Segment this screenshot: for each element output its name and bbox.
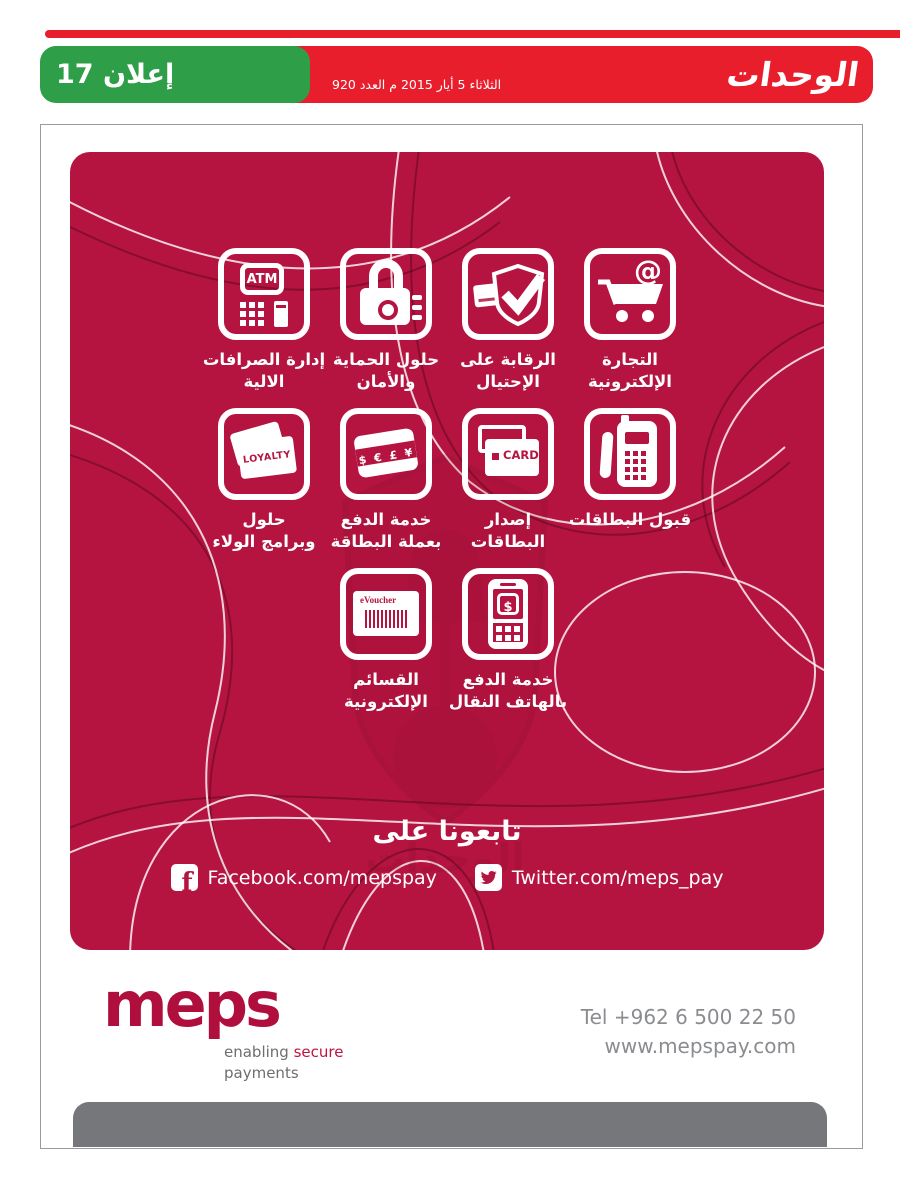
service-tile-security: حلول الحماية والأمان: [325, 248, 447, 393]
service-label-evoucher: القسائم الإلكترونية: [344, 669, 428, 713]
service-tile-loyalty: LOYALTY حلول وبرامج الولاء: [203, 408, 325, 553]
service-tile-currency: $ € £ ¥ خدمة الدفع بعملة البطاقة: [325, 408, 447, 553]
currency-card-icon: $ € £ ¥: [340, 408, 432, 500]
newspaper-title: الوحدات: [725, 55, 862, 94]
follow-us-heading: تابعونا على: [70, 816, 824, 847]
services-row-1: ATM إدارة الصرافات الالية: [70, 248, 824, 393]
currency-icon-text: $ € £ ¥: [358, 446, 415, 468]
newspaper-ad-page: الوحدات الثلاثاء 5 أيار 2015 م العدد 920…: [0, 0, 900, 1200]
bottom-gray-bar: [73, 1102, 827, 1147]
loyalty-cards-icon: LOYALTY: [218, 408, 310, 500]
service-tile-mobile-pay: $ خدمة الدفع بالهاتف النقال: [447, 568, 569, 713]
at-symbol: @: [634, 254, 662, 287]
barcode: [365, 610, 407, 628]
masthead-bar: الوحدات الثلاثاء 5 أيار 2015 م العدد 920: [280, 46, 873, 103]
ad-number-label: إعلان 17: [56, 59, 174, 90]
issue-date: الثلاثاء 5 أيار 2015 م العدد 920: [332, 77, 501, 92]
service-label-security: حلول الحماية والأمان: [333, 349, 439, 393]
twitter-url: Twitter.com/meps_pay: [512, 867, 724, 889]
card-icon-text: CARD: [503, 448, 539, 462]
service-label-pos: قبول البطاقات: [569, 509, 691, 531]
ad-number-badge: إعلان 17: [40, 46, 310, 103]
service-tile-atm: ATM إدارة الصرافات الالية: [203, 248, 325, 393]
mobile-phone-dollar-icon: $: [462, 568, 554, 660]
card-icon: CARD: [462, 408, 554, 500]
ad-canvas: الوحدات ATM إدارة الصرافات الالية: [70, 152, 824, 950]
service-tile-pos: قبول البطاقات: [569, 408, 691, 553]
services-row-2: LOYALTY حلول وبرامج الولاء $ € £ ¥ خدمة …: [70, 408, 824, 553]
service-label-loyalty: حلول وبرامج الولاء: [212, 509, 315, 553]
padlock-icon: [340, 248, 432, 340]
service-tile-ecommerce: @ التجارة الإلكترونية: [569, 248, 691, 393]
service-tile-fraud: الرقابة على الإحتيال: [447, 248, 569, 393]
evoucher-icon-text: eVoucher: [360, 595, 396, 605]
pos-terminal-icon: [584, 408, 676, 500]
service-label-fraud: الرقابة على الإحتيال: [460, 349, 556, 393]
cart-at-icon: @: [584, 248, 676, 340]
service-label-ecommerce: التجارة الإلكترونية: [588, 349, 672, 393]
atm-icon-text: ATM: [247, 272, 278, 287]
service-label-atm: إدارة الصرافات الالية: [203, 349, 325, 393]
masthead-top-strip: [45, 30, 900, 38]
meps-tagline: enabling secure payments: [224, 1042, 343, 1084]
evoucher-barcode-icon: eVoucher: [340, 568, 432, 660]
loyalty-icon-text: LOYALTY: [242, 449, 291, 466]
atm-icon: ATM: [218, 248, 310, 340]
shield-check-icon: [462, 248, 554, 340]
services-row-3: eVoucher القسائم الإلكترونية $: [70, 568, 824, 713]
facebook-link[interactable]: f Facebook.com/mepspay: [171, 864, 437, 891]
service-tile-card-issue: CARD إصدار البطاقات: [447, 408, 569, 553]
dollar-icon-text: $: [503, 600, 512, 615]
service-tile-evoucher: eVoucher القسائم الإلكترونية: [325, 568, 447, 713]
facebook-url: Facebook.com/mepspay: [208, 867, 437, 889]
meps-logo: meps: [103, 974, 279, 1036]
phone-number: Tel +962 6 500 22 50: [581, 1003, 796, 1032]
facebook-icon: f: [171, 864, 198, 891]
contact-block: Tel +962 6 500 22 50 www.mepspay.com: [581, 1003, 796, 1061]
social-links-row: f Facebook.com/mepspay Twitter.com/meps_…: [70, 864, 824, 891]
twitter-link[interactable]: Twitter.com/meps_pay: [475, 864, 724, 891]
website-url[interactable]: www.mepspay.com: [581, 1032, 796, 1061]
service-label-mobile-pay: خدمة الدفع بالهاتف النقال: [449, 669, 567, 713]
service-label-currency: خدمة الدفع بعملة البطاقة: [331, 509, 442, 553]
service-label-card-issue: إصدار البطاقات: [471, 509, 545, 553]
twitter-icon: [475, 864, 502, 891]
